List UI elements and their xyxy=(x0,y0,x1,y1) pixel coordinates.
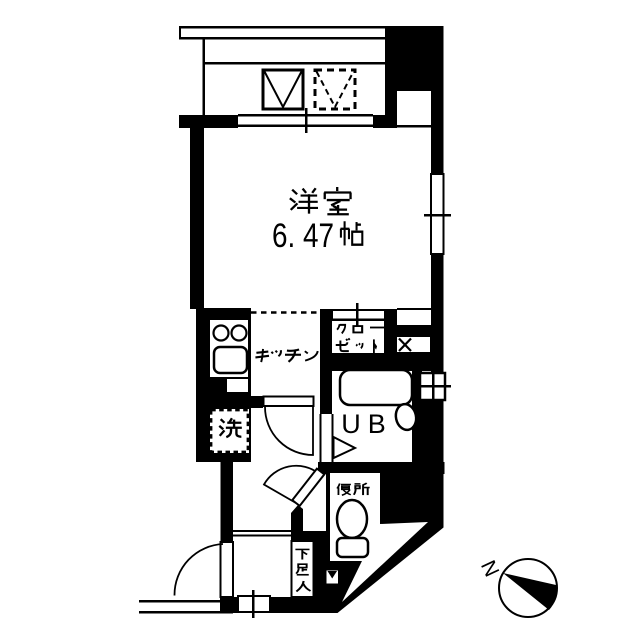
svg-text:UB: UB xyxy=(341,409,393,439)
svg-text:6. 47: 6. 47 xyxy=(272,216,334,254)
